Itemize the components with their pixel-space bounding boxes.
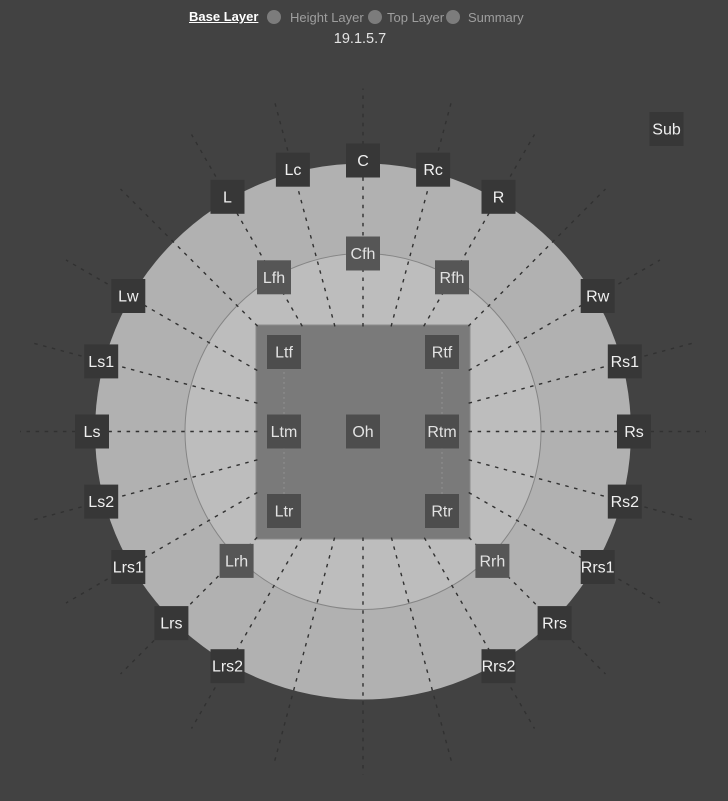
svg-text:Rs1: Rs1 <box>611 354 640 371</box>
svg-text:R: R <box>493 189 505 206</box>
svg-text:Lfh: Lfh <box>263 270 285 287</box>
svg-text:Lrh: Lrh <box>225 553 248 570</box>
svg-text:Ls2: Ls2 <box>88 494 114 511</box>
svg-text:Lc: Lc <box>284 162 301 179</box>
svg-text:L: L <box>223 189 232 206</box>
svg-text:Lrs: Lrs <box>160 616 182 633</box>
svg-text:Ls1: Ls1 <box>88 354 114 371</box>
svg-text:Rrs2: Rrs2 <box>482 659 516 676</box>
svg-text:Ls: Ls <box>84 424 101 441</box>
svg-text:Lrs2: Lrs2 <box>212 659 243 676</box>
svg-text:Rs: Rs <box>624 424 644 441</box>
svg-text:Ltr: Ltr <box>275 504 294 521</box>
svg-text:Sub: Sub <box>652 122 681 139</box>
svg-text:Rtf: Rtf <box>432 345 453 362</box>
svg-text:Rw: Rw <box>586 289 610 306</box>
svg-text:Ltm: Ltm <box>271 424 298 441</box>
svg-text:Ltf: Ltf <box>275 345 293 362</box>
svg-text:Rtm: Rtm <box>427 424 456 441</box>
svg-text:Cfh: Cfh <box>351 246 376 263</box>
svg-text:Rc: Rc <box>423 162 443 179</box>
svg-text:Rs2: Rs2 <box>611 494 640 511</box>
svg-text:C: C <box>357 153 369 170</box>
svg-text:Rfh: Rfh <box>440 270 465 287</box>
svg-text:Rtr: Rtr <box>431 504 453 521</box>
svg-text:Lrs1: Lrs1 <box>113 560 144 577</box>
svg-text:Lw: Lw <box>118 289 139 306</box>
svg-text:Rrs: Rrs <box>542 616 567 633</box>
svg-text:Rrs1: Rrs1 <box>581 560 615 577</box>
svg-text:Rrh: Rrh <box>480 553 506 570</box>
svg-text:Oh: Oh <box>352 424 373 441</box>
